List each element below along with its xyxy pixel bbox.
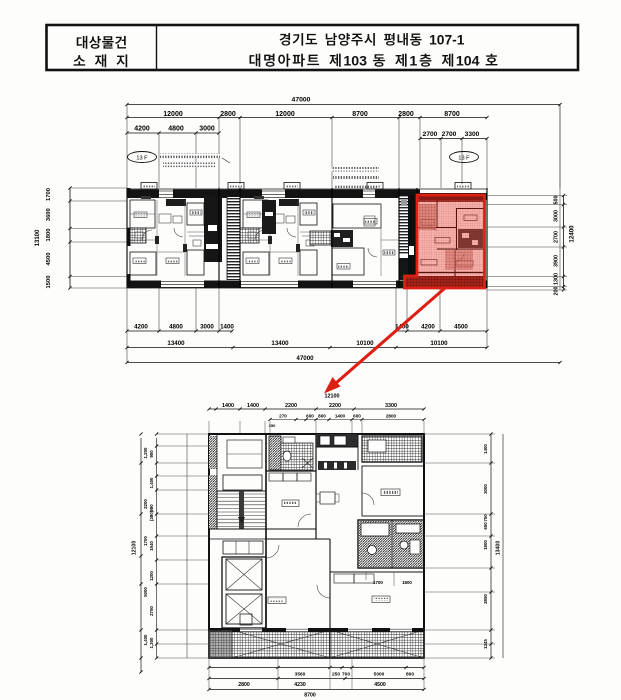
svg-text:3560: 3560 (295, 672, 306, 678)
svg-text:13100: 13100 (35, 229, 41, 246)
svg-text:1400: 1400 (247, 403, 259, 409)
svg-text:600: 600 (306, 414, 314, 419)
svg-text:1,200: 1,200 (143, 447, 148, 459)
svg-text:1: 1 (409, 54, 417, 70)
svg-text:2700: 2700 (442, 131, 457, 138)
svg-text:1500: 1500 (46, 276, 52, 289)
svg-text:980: 980 (149, 504, 154, 512)
svg-text:12000: 12000 (163, 111, 183, 118)
svg-text:3000: 3000 (554, 210, 560, 222)
svg-text:107-1: 107-1 (429, 33, 465, 48)
svg-text:47000: 47000 (292, 97, 311, 104)
svg-text:2700: 2700 (554, 231, 560, 243)
svg-text:4800: 4800 (168, 126, 184, 133)
svg-text:2700: 2700 (423, 131, 438, 138)
svg-text:13400: 13400 (167, 340, 185, 347)
svg-text:4500: 4500 (454, 324, 468, 331)
svg-text:3850: 3850 (483, 594, 488, 604)
svg-text:2800: 2800 (398, 111, 414, 118)
svg-text:700: 700 (342, 672, 350, 678)
svg-text:1700: 1700 (373, 580, 383, 585)
svg-text:12000: 12000 (275, 111, 295, 118)
svg-text:3000: 3000 (200, 324, 214, 331)
svg-text:5000: 5000 (374, 672, 385, 678)
svg-text:(380): (380) (149, 510, 154, 521)
svg-text:1,400: 1,400 (143, 634, 148, 646)
svg-text:47000: 47000 (296, 355, 314, 362)
svg-text:1700: 1700 (143, 536, 148, 546)
svg-text:4200: 4200 (421, 324, 435, 331)
svg-text:2200: 2200 (285, 403, 297, 409)
svg-text:200: 200 (554, 287, 560, 296)
svg-text:4500: 4500 (374, 682, 386, 688)
svg-text:104: 104 (456, 54, 480, 70)
svg-text:1700: 1700 (46, 188, 52, 201)
svg-text:900: 900 (149, 450, 154, 458)
svg-text:1,300: 1,300 (149, 637, 154, 649)
svg-text:1800: 1800 (402, 580, 412, 585)
svg-text:4800: 4800 (169, 324, 183, 331)
svg-text:2200: 2200 (329, 403, 341, 409)
svg-text:1400: 1400 (222, 403, 234, 409)
svg-text:13 F: 13 F (136, 155, 148, 161)
svg-text:1800: 1800 (46, 229, 52, 242)
svg-text:4200: 4200 (134, 126, 150, 133)
svg-text:1400: 1400 (335, 414, 346, 419)
svg-text:750: 750 (483, 514, 488, 522)
svg-text:650: 650 (483, 522, 488, 530)
svg-text:500: 500 (554, 196, 560, 205)
svg-text:1200: 1200 (149, 571, 154, 581)
svg-text:2200: 2200 (143, 499, 148, 509)
svg-text:3900: 3900 (554, 255, 560, 267)
svg-text:10100: 10100 (430, 340, 448, 347)
svg-text:10100: 10100 (356, 340, 374, 347)
svg-text:3300: 3300 (465, 131, 480, 138)
svg-text:1400: 1400 (483, 444, 488, 454)
svg-text:12100: 12100 (132, 541, 138, 556)
svg-text:13400: 13400 (496, 541, 502, 556)
svg-text:2800: 2800 (386, 414, 397, 419)
svg-text:4500: 4500 (46, 253, 52, 266)
svg-text:3300: 3300 (385, 403, 397, 409)
svg-text:12400: 12400 (569, 225, 576, 243)
svg-text:270: 270 (279, 414, 287, 419)
svg-text:5000: 5000 (143, 587, 148, 597)
svg-text:13 F: 13 F (458, 155, 470, 161)
svg-text:2750: 2750 (149, 606, 154, 616)
svg-text:1300: 1300 (554, 273, 560, 285)
svg-text:8700: 8700 (444, 111, 460, 118)
svg-text:4200: 4200 (134, 324, 148, 331)
svg-text:3000: 3000 (483, 484, 488, 494)
svg-text:13400: 13400 (271, 340, 289, 347)
svg-text:3000: 3000 (199, 126, 215, 133)
svg-text:12100: 12100 (325, 394, 340, 400)
svg-text:250: 250 (332, 672, 340, 678)
svg-text:1,400: 1,400 (149, 477, 154, 489)
svg-text:600: 600 (353, 414, 361, 419)
svg-text:2800: 2800 (220, 111, 236, 118)
svg-text:4230: 4230 (294, 682, 306, 688)
svg-text:800: 800 (406, 672, 414, 678)
svg-text:800: 800 (318, 414, 326, 419)
svg-text:2800: 2800 (238, 682, 250, 688)
svg-text:1800: 1800 (483, 540, 488, 550)
svg-text:1940: 1940 (149, 541, 154, 551)
svg-text:8700: 8700 (352, 111, 368, 118)
svg-text:103: 103 (343, 54, 367, 70)
svg-text:3600: 3600 (46, 208, 52, 221)
svg-text:8700: 8700 (304, 693, 316, 699)
svg-text:1345: 1345 (483, 639, 488, 649)
svg-text:1400: 1400 (220, 324, 234, 331)
